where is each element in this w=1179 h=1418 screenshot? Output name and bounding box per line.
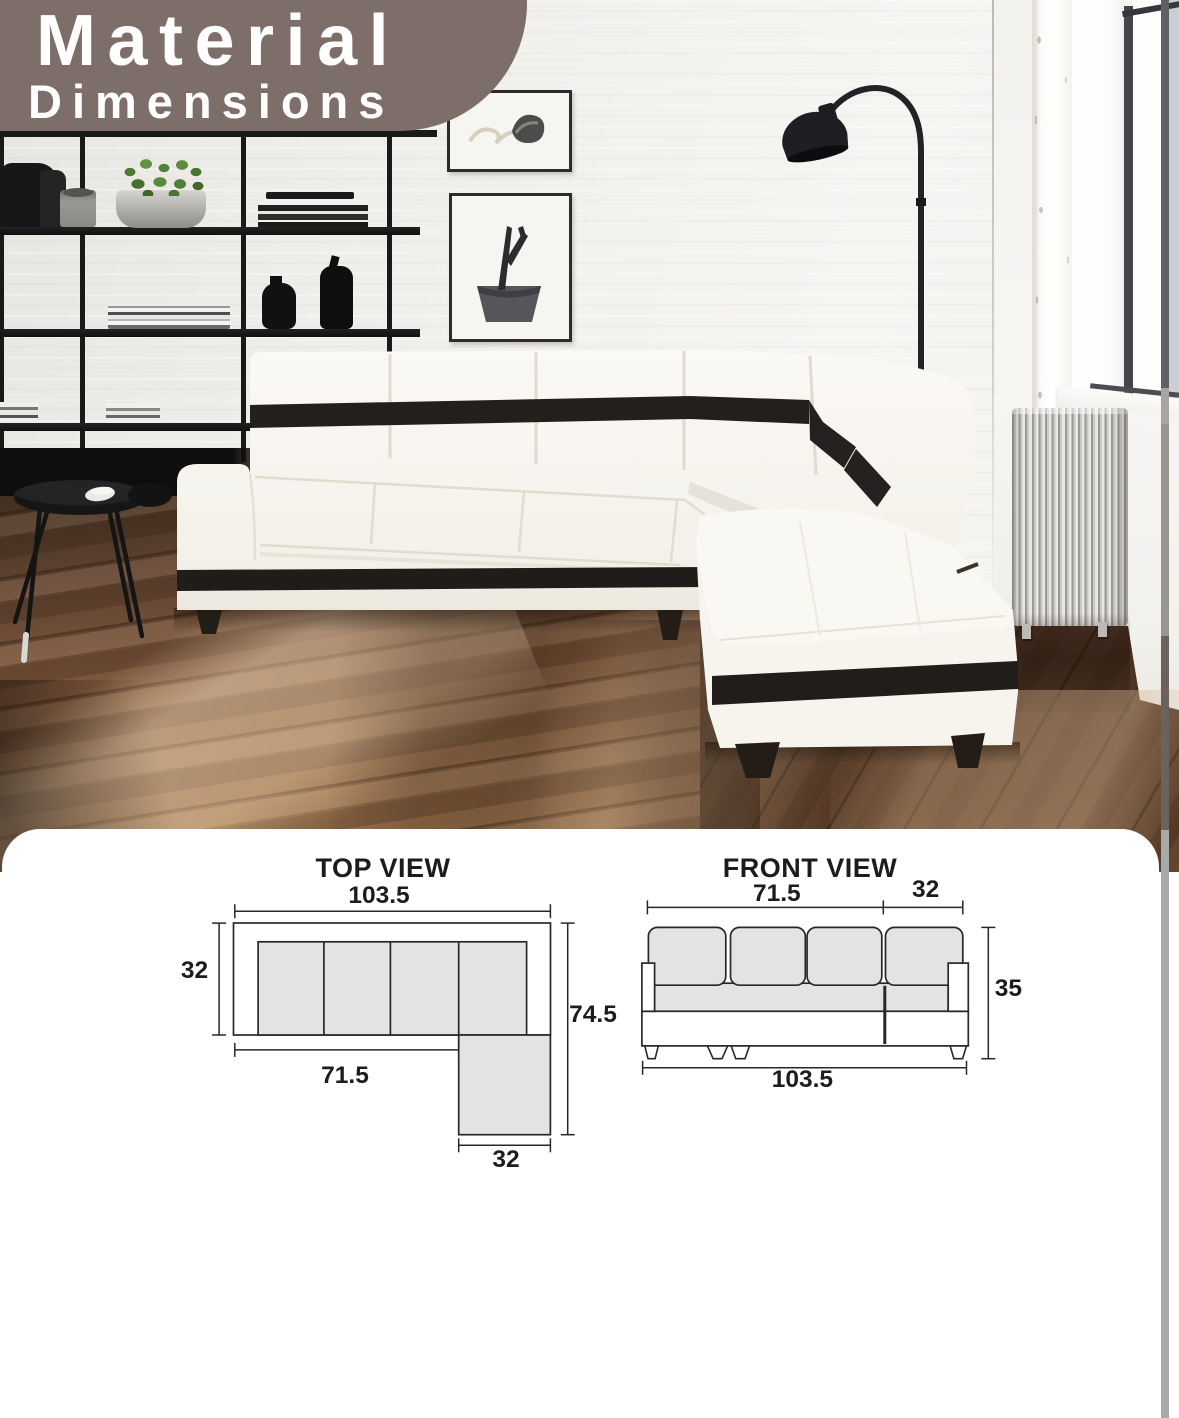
- svg-text:71.5: 71.5: [321, 1062, 369, 1089]
- svg-text:TOP VIEW: TOP VIEW: [315, 853, 450, 883]
- svg-text:74.5: 74.5: [569, 1001, 617, 1028]
- svg-text:103.5: 103.5: [348, 882, 409, 909]
- svg-text:32: 32: [912, 876, 939, 903]
- svg-text:FRONT VIEW: FRONT VIEW: [723, 853, 898, 883]
- svg-text:103.5: 103.5: [772, 1066, 833, 1093]
- svg-text:71.5: 71.5: [753, 880, 801, 907]
- svg-text:32: 32: [181, 957, 208, 984]
- svg-text:32: 32: [492, 1146, 519, 1173]
- svg-text:35: 35: [995, 975, 1022, 1002]
